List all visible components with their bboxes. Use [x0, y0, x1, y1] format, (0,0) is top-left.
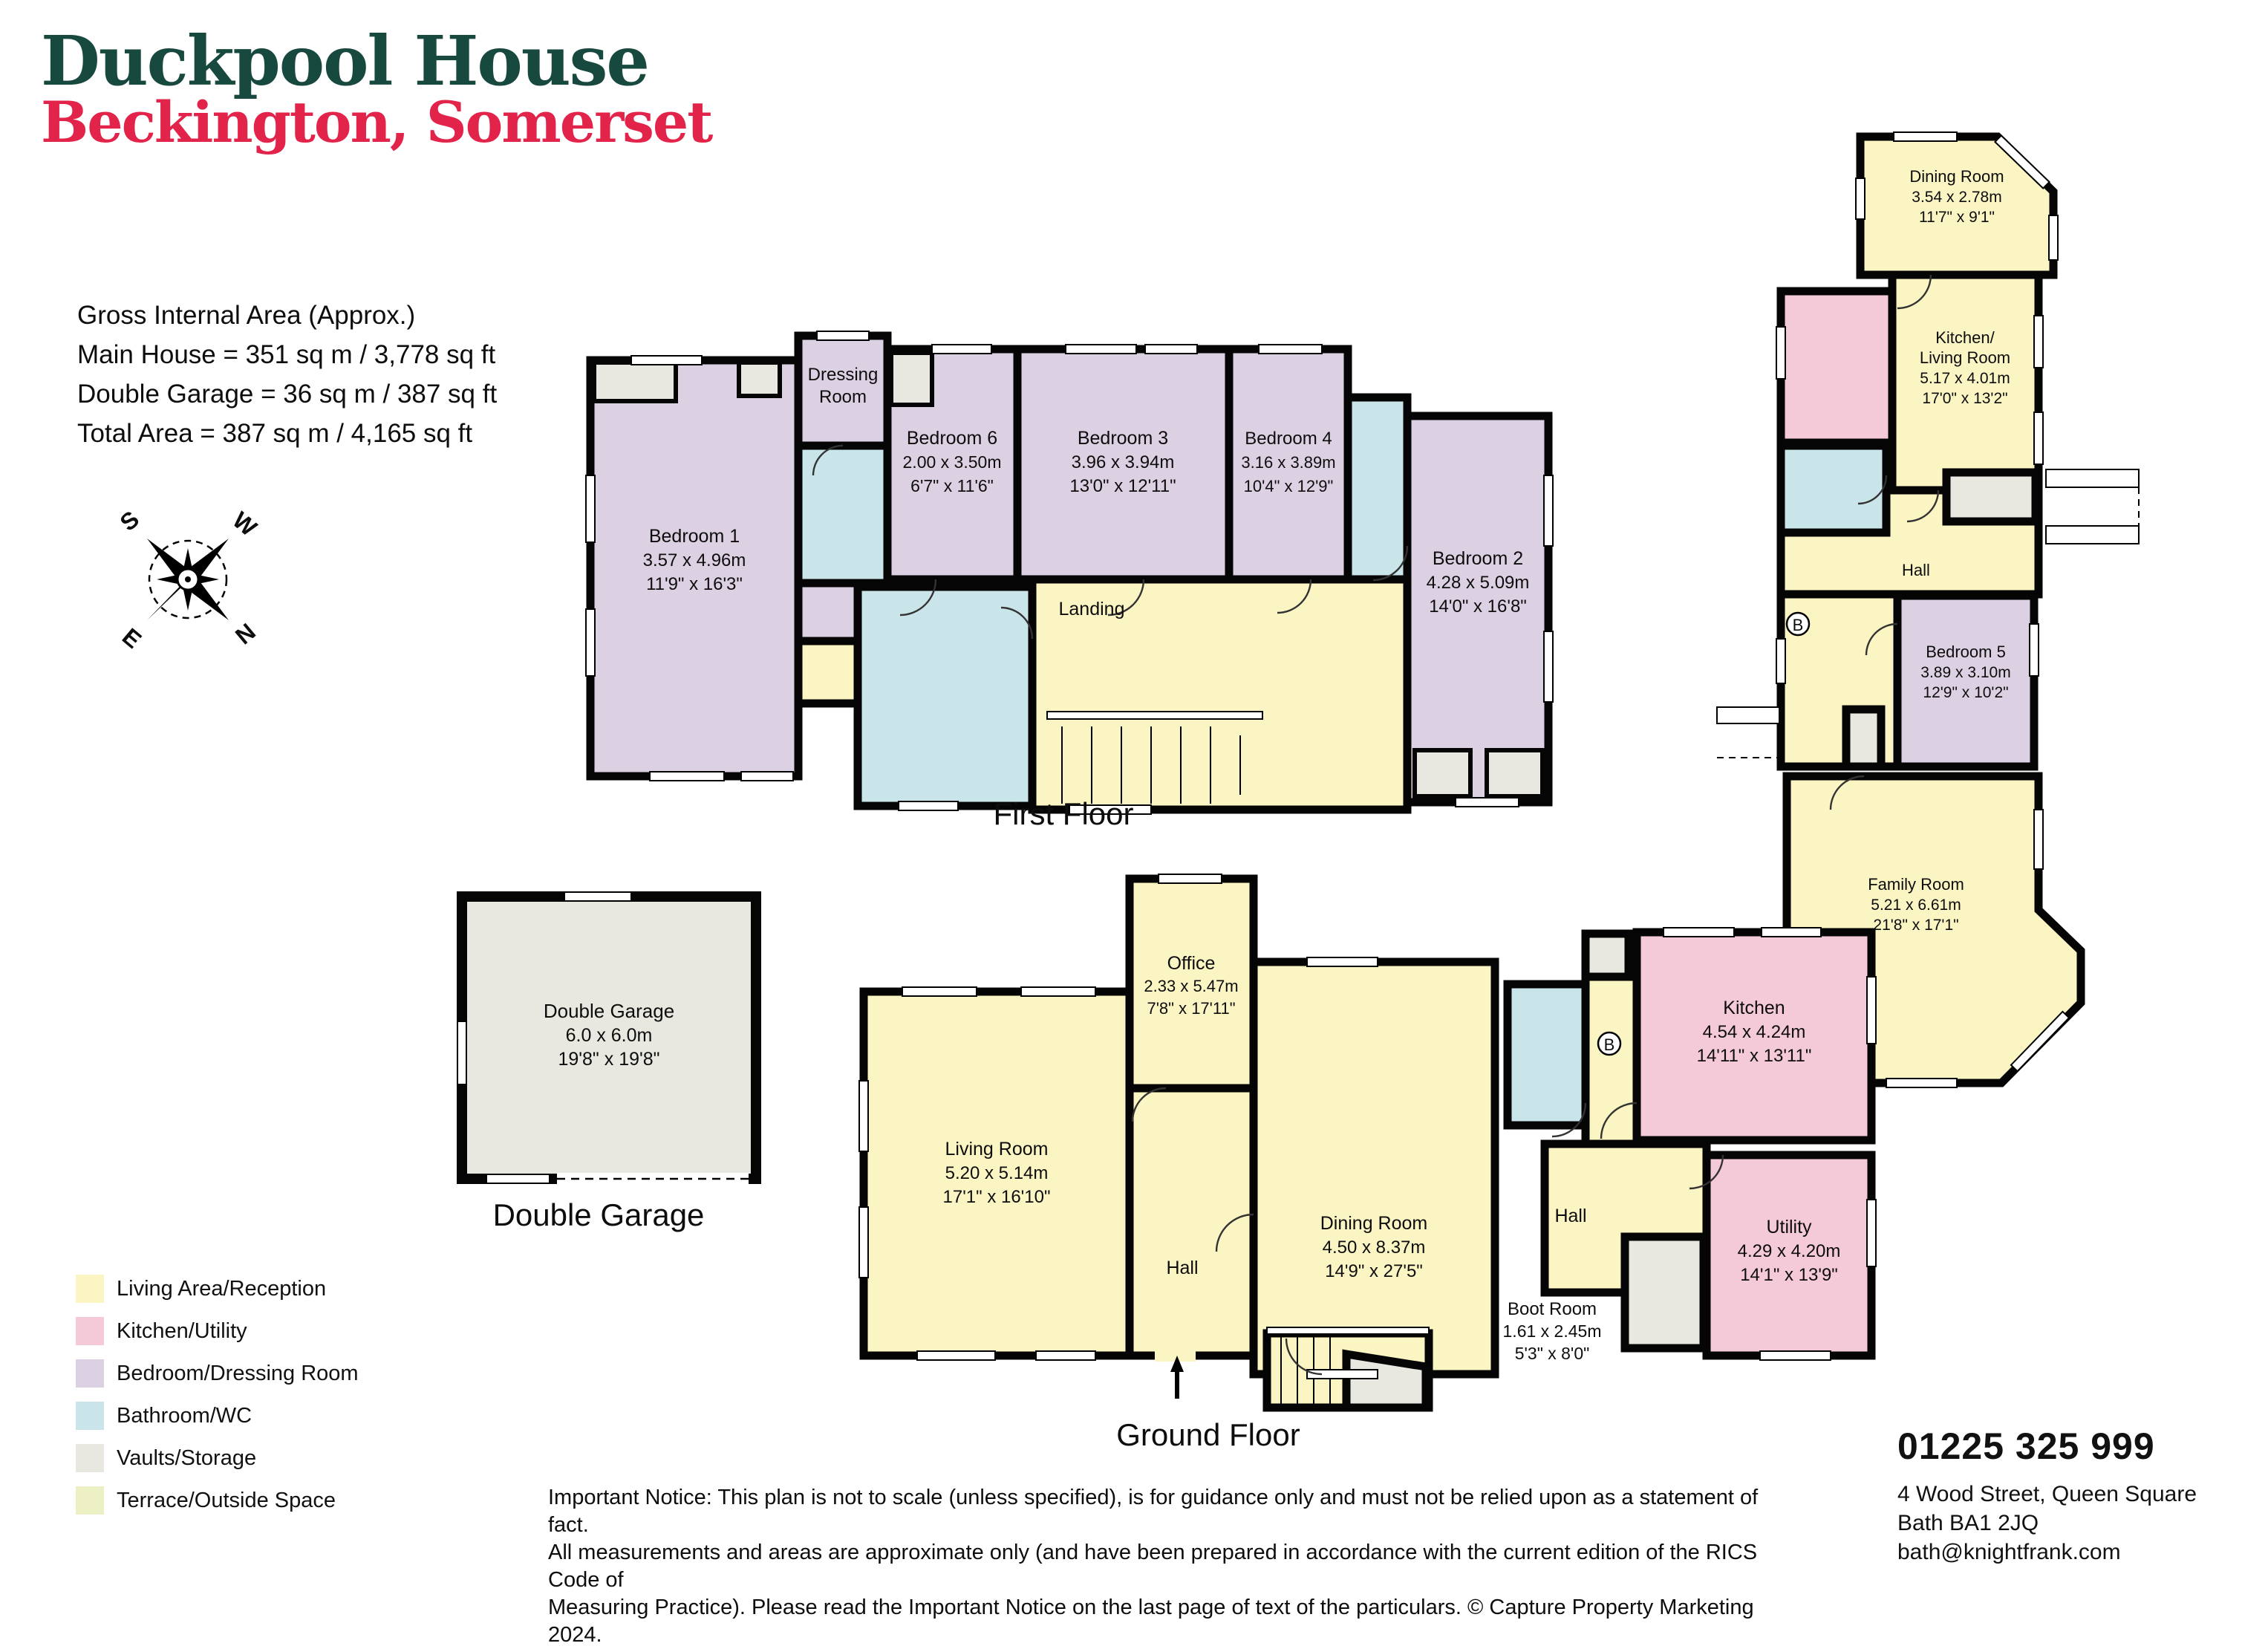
legend-label: Living Area/Reception: [117, 1277, 326, 1301]
hall-column: [1586, 977, 1637, 1144]
storage-nook: [1946, 472, 2036, 521]
label-dressing-2: Room: [819, 387, 867, 407]
dims-ft: 14'1" x 13'9": [1740, 1265, 1838, 1285]
legend-swatch: [76, 1444, 104, 1472]
label-bedroom-1: Bedroom 1: [649, 526, 740, 547]
stair-storage: [1346, 1354, 1426, 1408]
contact-block: 01225 325 999 4 Wood Street, Queen Squar…: [1897, 1425, 2197, 1567]
dims-ft: 6'7" x 11'6": [910, 476, 994, 495]
label-dressing-1: Dressing: [808, 365, 879, 385]
dims-ft: 10'4" x 12'9": [1244, 477, 1334, 495]
label-wing-hall: Hall: [1902, 561, 1930, 579]
boiler-label: B: [1793, 616, 1804, 634]
legend-swatch: [76, 1359, 104, 1388]
label-living: Living Room: [945, 1139, 1049, 1159]
legend-swatch: [76, 1486, 104, 1515]
label-kitchen: Kitchen: [1723, 998, 1785, 1018]
legend: Living Area/Reception Kitchen/Utility Be…: [76, 1275, 359, 1515]
ground-floor-plan: B Living Room 5.20 x 5.14m 17'1" x 16'10…: [847, 858, 1961, 1430]
room-shower: [1781, 446, 1886, 533]
dims-m: 4.28 x 5.09m: [1427, 573, 1530, 593]
legend-label: Terrace/Outside Space: [117, 1489, 336, 1513]
legend-swatch: [76, 1402, 104, 1430]
dims-ft: 17'0" x 13'2": [1922, 390, 2007, 407]
legend-label: Bedroom/Dressing Room: [117, 1362, 359, 1386]
garage-caption: Double Garage: [443, 1197, 755, 1233]
legend-item-living: Living Area/Reception: [76, 1275, 359, 1303]
first-floor-caption: First Floor: [907, 796, 1219, 832]
garage-plan: Double Garage 6.0 x 6.0m 19'8" x 19'8": [453, 888, 765, 1192]
storage-nook: [594, 362, 676, 401]
area-summary: Gross Internal Area (Approx.) Main House…: [77, 296, 497, 453]
dims-m: 2.00 x 3.50m: [903, 452, 1002, 472]
window: [564, 892, 631, 901]
dims-m: 4.29 x 4.20m: [1738, 1241, 1841, 1261]
legend-item-kitchen: Kitchen/Utility: [76, 1317, 359, 1345]
window: [457, 1021, 466, 1084]
dims-ft: 14'9" x 27'5": [1325, 1261, 1423, 1281]
label-bedroom-3: Bedroom 3: [1078, 428, 1168, 449]
dims-ft: 7'8" x 17'11": [1147, 999, 1235, 1018]
storage-nook: [1846, 709, 1881, 767]
dims-m: 5.17 x 4.01m: [1920, 370, 2010, 387]
address-line-1: 4 Wood Street, Queen Square: [1897, 1480, 2197, 1509]
corridor: [798, 641, 858, 703]
boiler-marker: B: [1598, 1032, 1620, 1055]
dims-ft: 14'0" x 16'8": [1429, 596, 1527, 617]
label-garage: Double Garage: [544, 1000, 674, 1022]
legend-item-terrace: Terrace/Outside Space: [76, 1486, 359, 1515]
label-dining: Dining Room: [1320, 1213, 1428, 1234]
dims-ft: 12'9" x 10'2": [1923, 684, 2008, 701]
label-bedroom-6: Bedroom 6: [907, 428, 997, 449]
label-boot-room: Boot Room: [1508, 1299, 1597, 1319]
entrance: [1155, 1350, 1196, 1399]
dims-m: 4.54 x 4.24m: [1703, 1022, 1806, 1042]
dims-m: 3.96 x 3.94m: [1072, 452, 1175, 472]
dims-m: 6.0 x 6.0m: [566, 1025, 653, 1046]
label-bedroom-5: Bedroom 5: [1926, 643, 2006, 661]
label-office: Office: [1167, 953, 1216, 974]
ground-floor-caption: Ground Floor: [1052, 1417, 1364, 1453]
area-double-garage: Double Garage = 36 sq m / 387 sq ft: [77, 374, 497, 414]
storage-nook: [1415, 750, 1470, 796]
notice-line: Measuring Practice). Please read the Imp…: [548, 1594, 1766, 1649]
dims-m: 4.50 x 8.37m: [1323, 1237, 1426, 1258]
room-bathroom-2: [1348, 397, 1407, 579]
boiler-marker: B: [1787, 613, 1809, 635]
address-line-2: Bath BA1 2JQ: [1897, 1509, 2197, 1538]
notice-line: Important Notice: This plan is not to sc…: [548, 1484, 1766, 1539]
first-floor-plan: Bedroom 1 3.57 x 4.96m 11'9" x 16'3" Dre…: [579, 319, 1574, 817]
area-main-house: Main House = 351 sq m / 3,778 sq ft: [77, 335, 497, 374]
dims-m: 1.61 x 2.45m: [1503, 1321, 1602, 1341]
legend-swatch: [76, 1275, 104, 1303]
legend-label: Bathroom/WC: [117, 1404, 252, 1428]
room-kitchenette: [1781, 291, 1892, 443]
room-dining: [1254, 962, 1495, 1374]
legend-label: Vaults/Storage: [117, 1446, 256, 1471]
legend-item-bedroom: Bedroom/Dressing Room: [76, 1359, 359, 1388]
notice-line: All measurements and areas are approxima…: [548, 1539, 1766, 1594]
email: bath@knightfrank.com: [1897, 1538, 2197, 1567]
room-wc: [1508, 984, 1586, 1125]
dims-ft: 5'3" x 8'0": [1515, 1344, 1590, 1363]
dims-m: 2.33 x 5.47m: [1144, 977, 1238, 995]
label-kitchen-living-1: Kitchen/: [1935, 328, 1995, 347]
storage-nook: [891, 353, 932, 405]
label-kitchen-living-2: Living Room: [1920, 348, 2010, 367]
label-wing-dining: Dining Room: [1909, 167, 2004, 186]
dims-ft: 14'11" x 13'11": [1697, 1046, 1812, 1066]
garage-door: [486, 1173, 749, 1185]
storage-nook: [739, 362, 780, 396]
legend-swatch: [76, 1317, 104, 1345]
page-subtitle: Beckington, Somerset: [41, 89, 711, 155]
label-utility: Utility: [1766, 1217, 1812, 1237]
room-family-bathroom: [858, 587, 1032, 806]
label-bedroom-4: Bedroom 4: [1245, 429, 1332, 449]
area-heading: Gross Internal Area (Approx.): [77, 296, 497, 335]
dims-m: 5.20 x 5.14m: [945, 1163, 1049, 1183]
compass-e: E: [117, 623, 146, 654]
label-landing: Landing: [1059, 599, 1125, 619]
dims-ft: 13'0" x 12'11": [1069, 476, 1176, 496]
compass-s: S: [115, 506, 144, 536]
boiler-label: B: [1604, 1035, 1615, 1054]
room-hall-left: [1130, 1088, 1254, 1356]
important-notice: Important Notice: This plan is not to sc…: [548, 1484, 1766, 1649]
legend-label: Kitchen/Utility: [117, 1319, 247, 1344]
compass-icon: W N E S: [99, 490, 277, 669]
legend-item-bathroom: Bathroom/WC: [76, 1402, 359, 1430]
dims-m: 3.57 x 4.96m: [643, 550, 746, 570]
label-hall-left: Hall: [1166, 1258, 1198, 1278]
room-bedroom-5: [1897, 596, 2034, 767]
room-boot: [1625, 1237, 1704, 1348]
label-bedroom-2: Bedroom 2: [1433, 548, 1523, 569]
dims-ft: 19'8" x 19'8": [558, 1049, 659, 1070]
storage-nook: [1487, 750, 1542, 796]
room-ensuite: [798, 446, 887, 583]
dims-m: 3.16 x 3.89m: [1241, 453, 1335, 472]
dims-ft: 11'9" x 16'3": [646, 574, 743, 594]
floorplan-page: { "header": { "title": "Duckpool House",…: [0, 0, 2268, 1604]
legend-item-vaults: Vaults/Storage: [76, 1444, 359, 1472]
phone-number: 01225 325 999: [1897, 1425, 2197, 1468]
compass-n: N: [230, 618, 261, 649]
dims-m: 3.54 x 2.78m: [1912, 189, 2001, 206]
label-hall-right: Hall: [1554, 1206, 1586, 1226]
area-total: Total Area = 387 sq m / 4,165 sq ft: [77, 414, 497, 453]
compass-w: W: [228, 507, 263, 542]
dims-ft: 17'1" x 16'10": [943, 1187, 1051, 1207]
dims-ft: 11'7" x 9'1": [1919, 209, 1995, 226]
dims-m: 3.89 x 3.10m: [1920, 664, 2010, 681]
